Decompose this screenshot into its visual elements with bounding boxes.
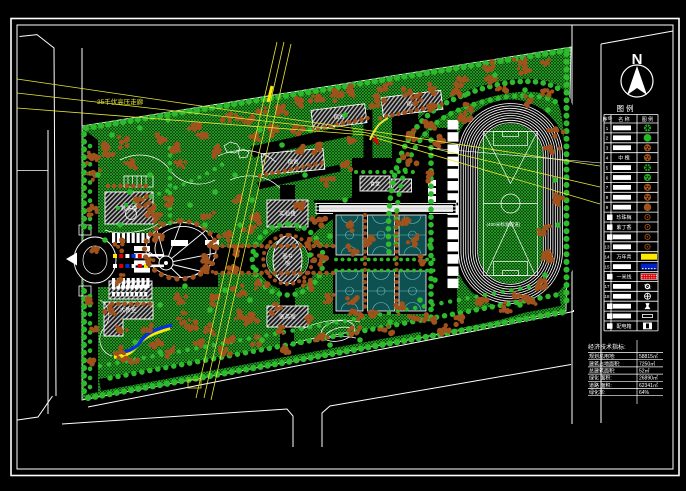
svg-text:(400米标准跑道): (400米标准跑道) [487,221,521,228]
svg-text:17: 17 [604,284,610,289]
svg-text:绿化率:: 绿化率: [589,389,605,396]
svg-text:62341㎡: 62341㎡ [639,382,658,389]
svg-text:大教室: 大教室 [120,306,137,314]
svg-text:58815㎡: 58815㎡ [639,353,658,360]
svg-text:道路 面积:: 道路 面积: [589,382,612,389]
svg-text:总建筑面积:: 总建筑面积: [589,368,615,375]
svg-text:14: 14 [604,255,610,260]
svg-text:15: 15 [604,264,610,269]
svg-text:52㎡: 52㎡ [639,368,650,375]
svg-text:图 例: 图 例 [642,116,653,123]
svg-text:13: 13 [604,245,610,250]
svg-text:中 槐: 中 槐 [618,155,629,162]
svg-text:实验楼: 实验楼 [279,210,296,218]
svg-text:医务室: 医务室 [279,313,296,321]
svg-text:经济技术指标:: 经济技术指标: [588,343,626,351]
svg-text:名 称: 名 称 [618,116,629,123]
svg-text:建筑占地面积:: 建筑占地面积: [589,360,620,367]
svg-text:一米线: 一米线 [616,274,631,281]
svg-text:图书: 图书 [282,253,292,260]
svg-text:紫丁香: 紫丁香 [616,224,631,231]
svg-text:万年青: 万年青 [616,254,631,261]
svg-text:绿化 面积:: 绿化 面积: [589,375,612,382]
svg-text:食堂: 食堂 [370,181,380,188]
svg-text:图 例: 图 例 [616,103,633,113]
svg-text:26890㎡: 26890㎡ [639,375,658,382]
svg-text:64%: 64% [639,390,650,396]
svg-text:珍珠梅: 珍珠梅 [616,214,631,221]
svg-text:配电箱: 配电箱 [616,323,631,330]
svg-text:7250㎡: 7250㎡ [639,360,655,367]
svg-text:馆: 馆 [285,260,290,267]
svg-text:规划总用地:: 规划总用地: [589,353,615,360]
svg-text:18: 18 [604,294,610,299]
svg-text:35千伏高压走廊: 35千伏高压走廊 [97,97,144,106]
